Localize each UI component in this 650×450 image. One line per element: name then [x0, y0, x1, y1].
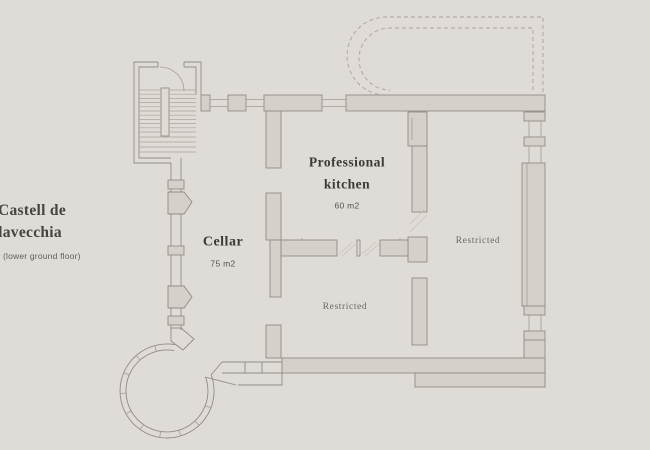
cellar-name: Cellar [203, 232, 243, 254]
tower-north-junction [171, 328, 194, 350]
restricted-area-label-lower: Restricted [323, 302, 368, 312]
tower-corridor [222, 362, 282, 385]
right-wall [522, 112, 545, 387]
kitchen-name-line1: Professional [309, 152, 385, 174]
stair-spine-wall [161, 88, 169, 136]
interior-walls [266, 111, 427, 358]
left-wall [168, 158, 192, 330]
kitchen-room-label: Professional kitchen 60 m2 [309, 152, 385, 211]
floor-plan-drawing [0, 0, 650, 450]
round-tower [120, 328, 236, 438]
kitchen-area: 60 m2 [309, 201, 385, 211]
door-arc [160, 67, 184, 91]
cellar-room-label: Cellar 75 m2 [203, 232, 243, 269]
bay-window [168, 286, 192, 308]
restricted-area-label-right: Restricted [456, 236, 501, 246]
bay-window [168, 192, 192, 214]
bottom-wall [222, 358, 545, 387]
terrace-dashed-outline [347, 17, 543, 95]
kitchen-name-line2: kitchen [309, 174, 385, 196]
stair-treads [139, 90, 196, 152]
tower-east-junction [205, 362, 236, 385]
cellar-area: 75 m2 [203, 259, 243, 269]
staircase [134, 62, 210, 163]
top-wall [210, 95, 545, 111]
floor-plan-page: Castell de Villavecchia Cellar (lower gr… [0, 0, 650, 450]
